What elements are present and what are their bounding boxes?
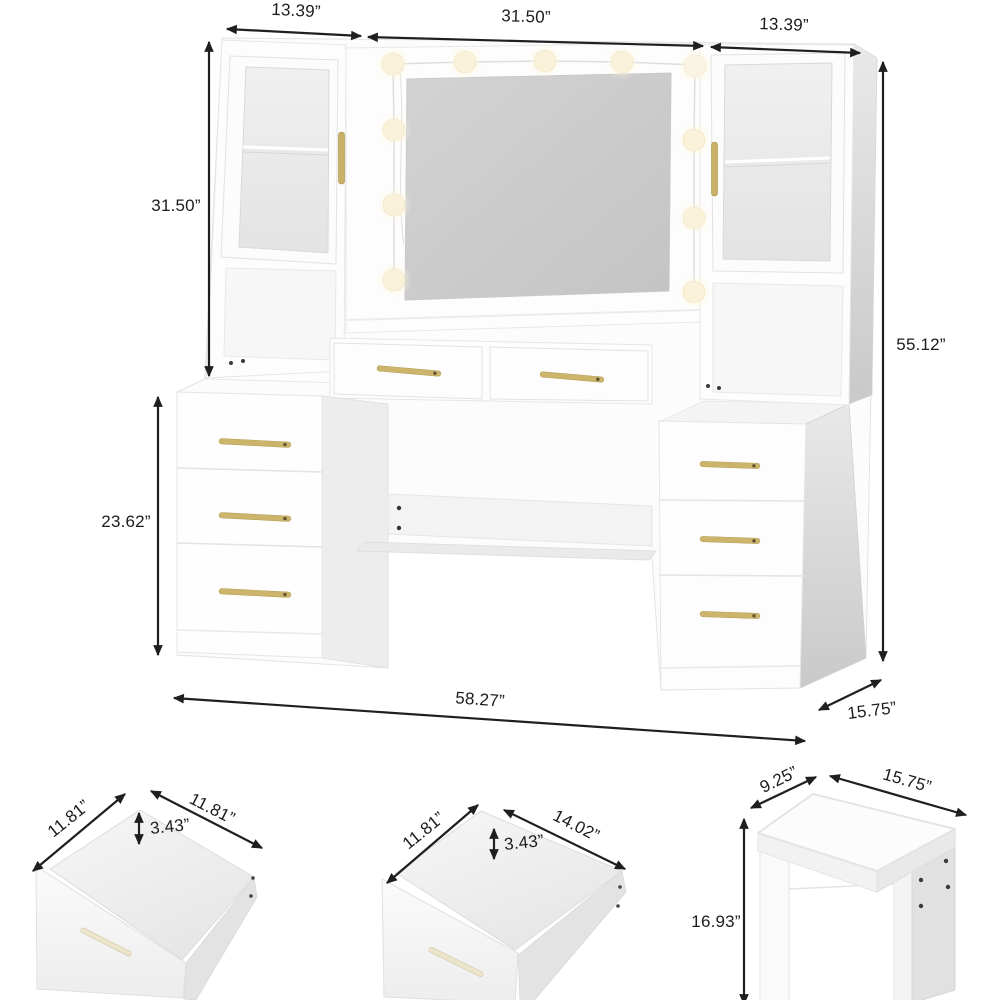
stool-left-leg xyxy=(760,846,789,1000)
screw-dot xyxy=(397,526,401,530)
left-hutch-cabinet xyxy=(205,40,346,383)
drawer-divider xyxy=(659,575,804,576)
right-door-handle xyxy=(712,142,718,196)
right-pedestal xyxy=(659,421,806,690)
dim-label-top-left-width: 13.39” xyxy=(271,0,321,22)
mirror-glass xyxy=(405,73,671,300)
left-open-cubby xyxy=(224,268,336,360)
light-bulb xyxy=(527,43,563,79)
light-bulb xyxy=(676,122,712,158)
light-bulb xyxy=(677,48,713,84)
light-bulb xyxy=(676,274,712,310)
dimension-diagram: 13.39” 31.50” 13.39” 31.50” 55.12” 23.62… xyxy=(0,0,1000,1000)
right-hutch-cabinet xyxy=(700,44,854,405)
screw-dot xyxy=(944,859,948,863)
lighted-mirror xyxy=(346,43,713,333)
cam-screw xyxy=(706,384,710,388)
dim-label-overall-width: 58.27” xyxy=(455,688,506,711)
left-glass-pane xyxy=(239,67,329,253)
screw-dot xyxy=(946,885,950,889)
cam-screw xyxy=(229,361,233,365)
vanity-unit xyxy=(177,38,877,690)
dim-label-small-drawer-height: 3.43” xyxy=(149,815,191,839)
dim-label-large-drawer-height: 3.43” xyxy=(503,831,545,855)
dim-label-pedestal-height: 23.62” xyxy=(101,512,150,532)
dim-label-top-right-width: 13.39” xyxy=(759,14,809,36)
light-bulb xyxy=(376,262,412,298)
dim-label-overall-height: 55.12” xyxy=(896,335,945,355)
stool-right-leg xyxy=(894,867,912,1000)
left-door-handle xyxy=(339,132,345,184)
dim-arrow-top-left-width xyxy=(227,29,361,36)
desk-apron xyxy=(330,338,652,404)
screw-dot xyxy=(251,876,255,880)
furniture-line-art xyxy=(0,0,1000,1000)
screw-dot xyxy=(249,894,253,898)
screw-dot xyxy=(919,878,923,882)
left-pedestal-side xyxy=(322,396,388,668)
footrest-assembly xyxy=(357,494,656,560)
left-pedestal xyxy=(177,392,388,668)
cam-screw xyxy=(241,359,245,363)
right-open-cubby xyxy=(713,283,843,396)
screw-dot xyxy=(397,506,401,510)
light-bulb xyxy=(447,44,483,80)
dim-label-stool-height: 16.93” xyxy=(691,912,740,932)
drawer-divider xyxy=(659,500,806,501)
light-bulb xyxy=(604,44,640,80)
dim-label-hutch-height: 31.50” xyxy=(151,196,200,216)
dim-label-top-center-width: 31.50” xyxy=(501,6,551,28)
light-bulb xyxy=(375,46,411,82)
stool-diagram xyxy=(758,794,955,1000)
left-pedestal-front xyxy=(177,392,322,658)
screw-dot xyxy=(616,904,620,908)
right-pedestal-front xyxy=(659,421,806,690)
light-bulb xyxy=(376,112,412,148)
screw-dot xyxy=(618,885,622,889)
small-drawer-diagram xyxy=(36,810,257,1000)
light-bulb xyxy=(676,200,712,236)
light-bulb xyxy=(376,187,412,223)
cam-screw xyxy=(717,386,721,390)
screw-dot xyxy=(919,904,923,908)
